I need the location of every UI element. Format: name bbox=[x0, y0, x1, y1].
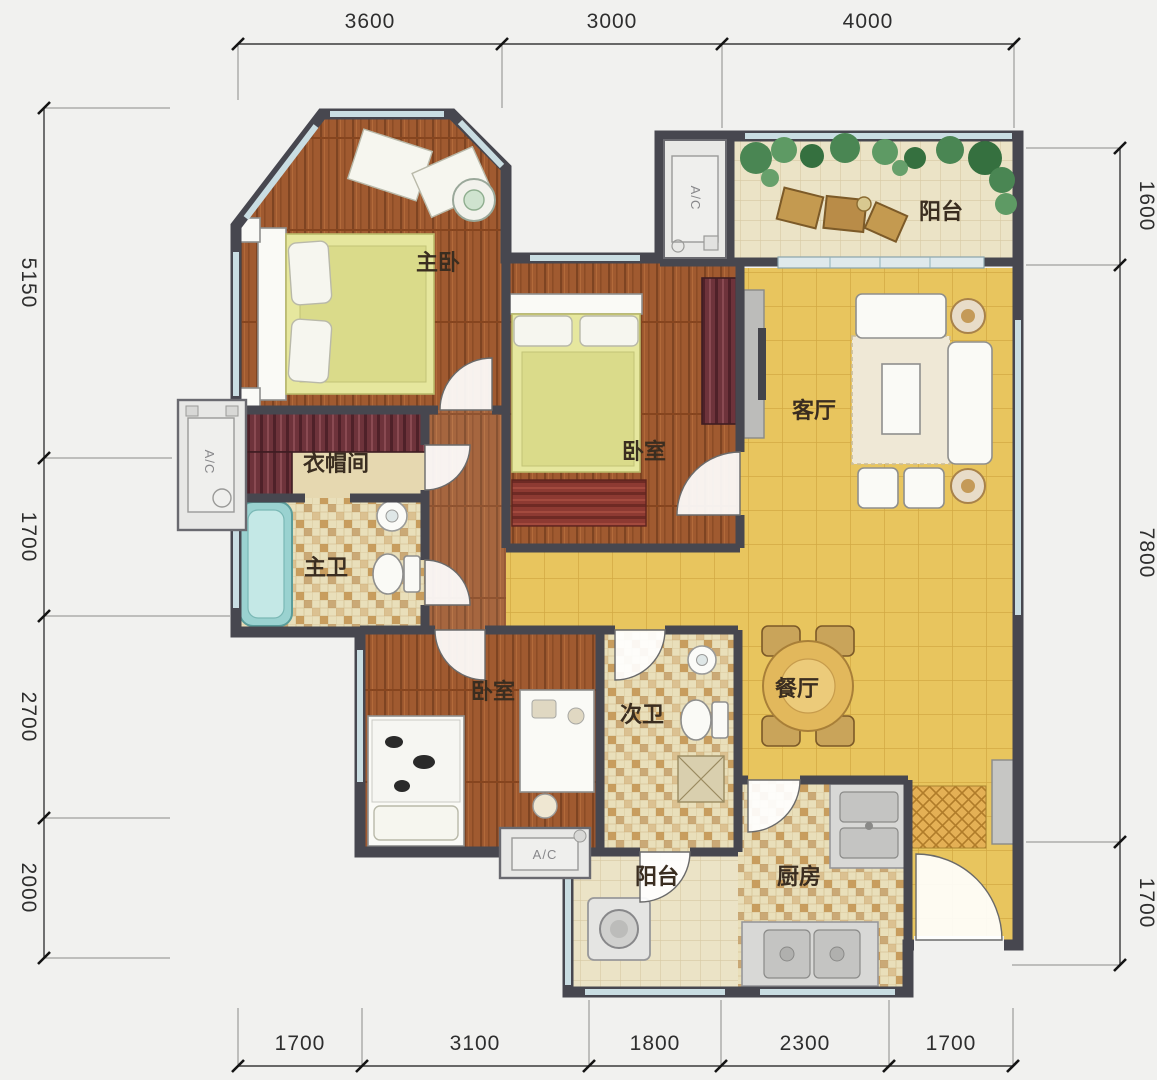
master-bath-toilet bbox=[373, 554, 420, 594]
south-bed bbox=[368, 716, 464, 846]
dim-right-3: 1700 bbox=[1135, 878, 1157, 929]
master-bed bbox=[238, 218, 434, 412]
ac-platform-south: A/C bbox=[500, 828, 590, 878]
bathtub bbox=[240, 502, 292, 626]
dim-right-2: 7800 bbox=[1135, 528, 1157, 579]
second-bath-shower bbox=[678, 756, 724, 802]
dim-left-3: 2700 bbox=[17, 692, 40, 743]
dim-left-4: 2000 bbox=[17, 863, 40, 914]
washing-machine bbox=[588, 898, 650, 960]
ac-platform-north: A/C bbox=[664, 140, 726, 258]
middle-bedroom-cabinet bbox=[702, 278, 736, 424]
dim-top-1: 3600 bbox=[345, 10, 396, 33]
dimension-right: 1600 7800 1700 bbox=[1012, 142, 1157, 971]
balcony-sliding-door bbox=[778, 257, 984, 268]
room-label-kitchen: 厨房 bbox=[777, 864, 821, 889]
ac-platform-west: A/C bbox=[178, 400, 246, 530]
room-label-cloakroom: 衣帽间 bbox=[303, 451, 369, 476]
master-bath-sink bbox=[377, 501, 407, 531]
ac-label-south: A/C bbox=[533, 847, 558, 862]
dimension-bottom: 1700 3100 1800 2300 1700 bbox=[232, 1000, 1019, 1072]
dim-bottom-5: 1700 bbox=[926, 1032, 977, 1055]
dim-top-3: 4000 bbox=[843, 10, 894, 33]
floor-plan-svg: A/C A/C A/C 主卧 阳台 卧室 客厅 衣帽间 主卫 卧室 bbox=[0, 0, 1157, 1080]
shoe-cabinet bbox=[992, 760, 1016, 844]
room-label-bedroom-middle: 卧室 bbox=[622, 439, 666, 464]
dim-bottom-3: 1800 bbox=[630, 1032, 681, 1055]
room-label-master-bedroom: 主卧 bbox=[416, 250, 460, 275]
ac-label-west: A/C bbox=[202, 450, 217, 475]
second-bath-toilet bbox=[681, 700, 728, 740]
dim-top-2: 3000 bbox=[587, 10, 638, 33]
sofa-set bbox=[852, 294, 992, 508]
ac-label-north: A/C bbox=[688, 186, 703, 211]
dim-bottom-1: 1700 bbox=[275, 1032, 326, 1055]
dimension-left: 5150 1700 2700 2000 bbox=[17, 102, 230, 964]
entry-doormat bbox=[912, 786, 986, 848]
room-label-balcony-south: 阳台 bbox=[635, 864, 679, 889]
dim-bottom-4: 2300 bbox=[780, 1032, 831, 1055]
second-bath-sink bbox=[688, 646, 716, 674]
room-label-master-bath: 主卫 bbox=[304, 555, 348, 580]
dim-left-1: 5150 bbox=[17, 258, 40, 309]
kitchen-counter-east bbox=[830, 784, 906, 868]
room-label-bedroom-south: 卧室 bbox=[471, 679, 515, 704]
room-label-balcony-north: 阳台 bbox=[919, 199, 963, 224]
kitchen-counter-south bbox=[742, 922, 878, 986]
room-label-living-room: 客厅 bbox=[792, 398, 836, 423]
room-label-second-bath: 次卫 bbox=[620, 702, 664, 727]
middle-bedroom-rug bbox=[512, 480, 646, 526]
room-label-dining-room: 餐厅 bbox=[775, 676, 819, 701]
dim-left-2: 1700 bbox=[17, 512, 40, 563]
dim-bottom-2: 3100 bbox=[450, 1032, 501, 1055]
tv-cabinet bbox=[744, 290, 766, 438]
dim-right-1: 1600 bbox=[1135, 181, 1157, 232]
